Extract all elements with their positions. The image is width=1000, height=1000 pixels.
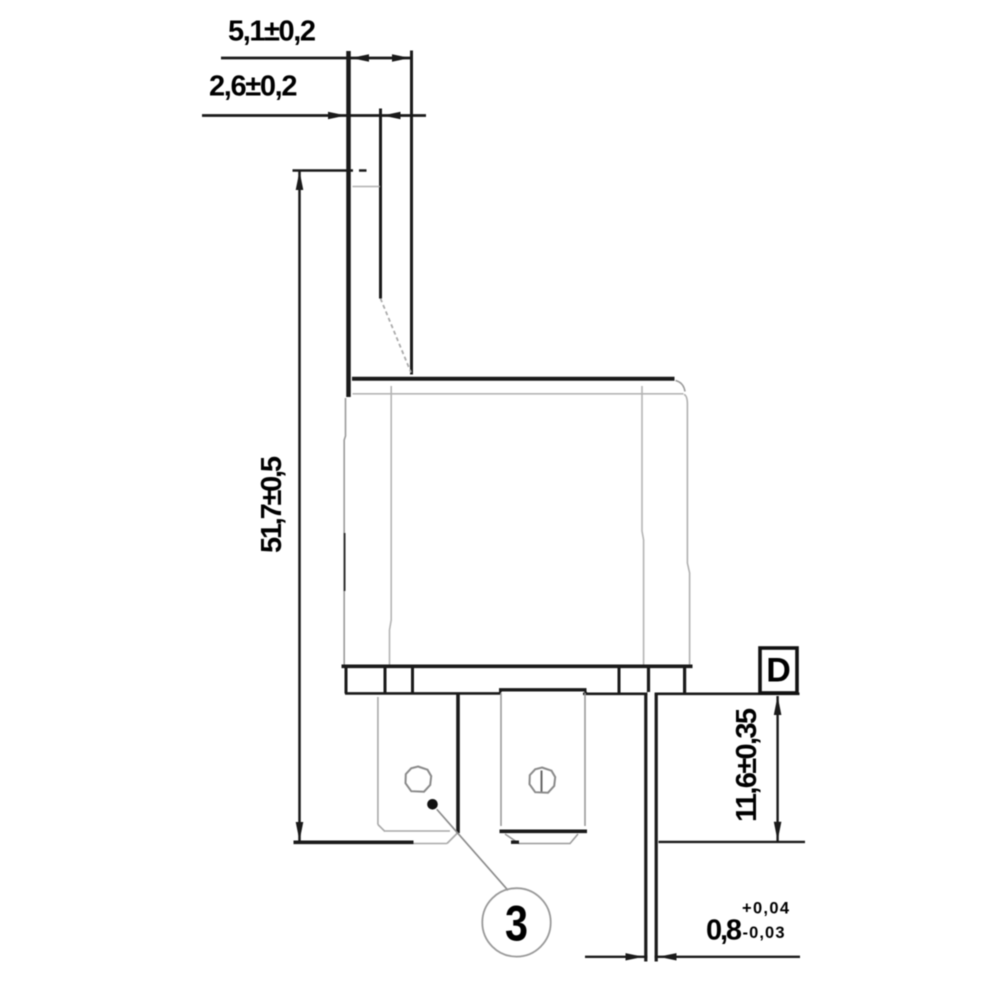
svg-text:51,7±0,5: 51,7±0,5 bbox=[256, 456, 288, 553]
svg-text:5,1±0,2: 5,1±0,2 bbox=[228, 16, 316, 48]
svg-text:-0,03: -0,03 bbox=[743, 924, 785, 942]
svg-text:0,8: 0,8 bbox=[706, 915, 742, 947]
svg-text:+0,04: +0,04 bbox=[742, 900, 790, 918]
svg-text:11,6±0,35: 11,6±0,35 bbox=[731, 708, 763, 822]
svg-text:3: 3 bbox=[505, 896, 528, 952]
svg-text:D: D bbox=[766, 652, 791, 690]
svg-text:2,6±0,2: 2,6±0,2 bbox=[209, 71, 298, 103]
